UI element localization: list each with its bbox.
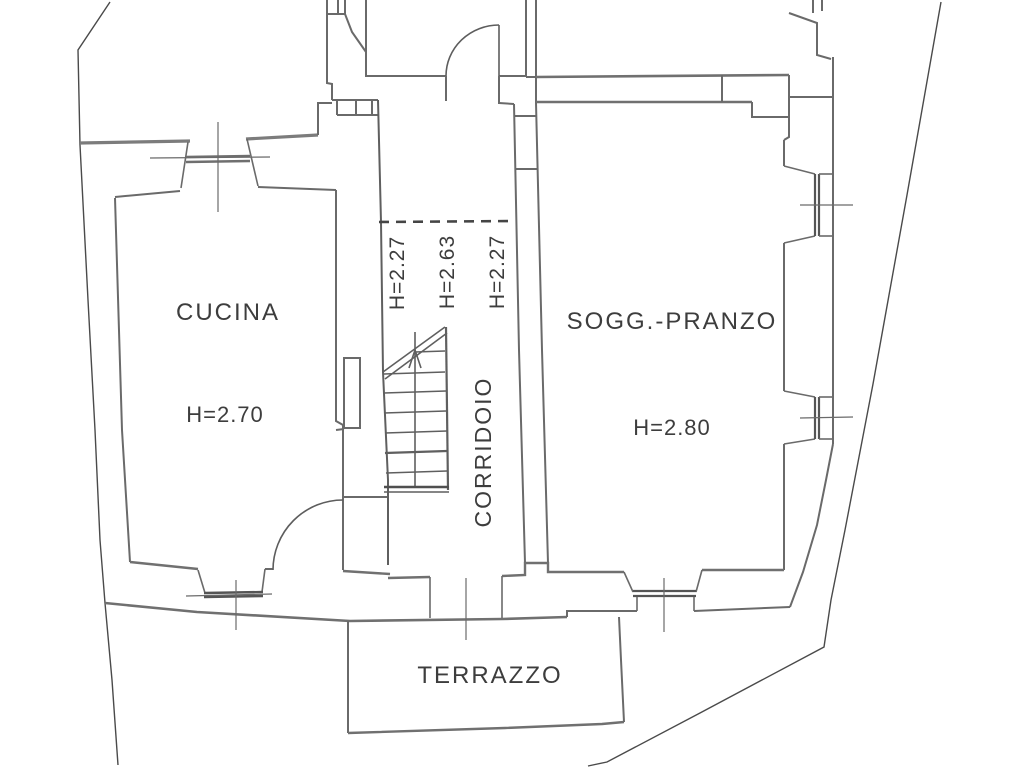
stair-tread	[386, 471, 447, 473]
room-label-cucina: CUCINA	[176, 299, 280, 326]
floor-plan-page: CUCINA H=2.70 SOGG.-PRANZO H=2.80 TERRAZ…	[0, 0, 1024, 768]
stair-right-wall	[446, 327, 448, 490]
window-right-lower	[784, 391, 853, 444]
labels: CUCINA H=2.70 SOGG.-PRANZO H=2.80 TERRAZ…	[176, 235, 777, 689]
height-label-cucina: H=2.70	[186, 402, 264, 427]
door-cucina	[273, 500, 343, 570]
floor-plan-canvas: CUCINA H=2.70 SOGG.-PRANZO H=2.80 TERRAZ…	[0, 0, 1024, 768]
height-label-corridor-1: H=2.27	[386, 236, 409, 310]
window-corridor-bottom	[430, 576, 502, 640]
room-label-corridoio: CORRIDOIO	[470, 377, 496, 528]
boundary-left	[78, 2, 118, 765]
window-cucina-top	[150, 122, 270, 212]
cucina-walls	[115, 187, 390, 574]
window-splay	[784, 236, 815, 243]
door-top	[446, 25, 499, 76]
top-room-walls	[526, 0, 789, 117]
stair-left-wall	[378, 100, 388, 565]
window-splay	[262, 569, 265, 592]
window-splay	[784, 439, 815, 444]
window-centerline	[800, 417, 853, 418]
height-label-sogg-pranzo: H=2.80	[633, 415, 711, 440]
room-label-terrazzo: TERRAZZO	[417, 662, 562, 689]
window-splay	[784, 391, 815, 397]
window-splay	[247, 139, 258, 186]
stair-tread	[415, 351, 445, 352]
property-boundary	[78, 2, 941, 766]
room-label-sogg-pranzo: SOGG.-PRANZO	[567, 308, 778, 335]
window-splay	[784, 166, 815, 174]
window-glazing	[204, 596, 263, 597]
window-splay	[624, 572, 633, 592]
flue-niche	[344, 358, 360, 428]
ceiling-break-dashed-line	[379, 221, 514, 222]
height-label-corridor-2: H=2.63	[436, 235, 459, 309]
sogg-pranzo-walls	[388, 103, 784, 578]
window-sogg-bottom	[624, 570, 702, 632]
door-swing-arc	[446, 25, 499, 76]
window-right-upper	[784, 166, 853, 243]
window-splay	[198, 570, 205, 593]
stair-break-line	[383, 327, 445, 372]
window-splay	[181, 142, 188, 188]
stair-tread	[385, 431, 447, 433]
window-splay	[696, 570, 702, 592]
window-cucina-bottom	[186, 569, 272, 630]
stair-tread	[385, 451, 447, 453]
window-glazing	[204, 592, 263, 593]
vestibule-walls	[327, 0, 526, 115]
height-label-corridor-3: H=2.27	[486, 235, 509, 309]
door-swing-arc	[273, 500, 343, 570]
